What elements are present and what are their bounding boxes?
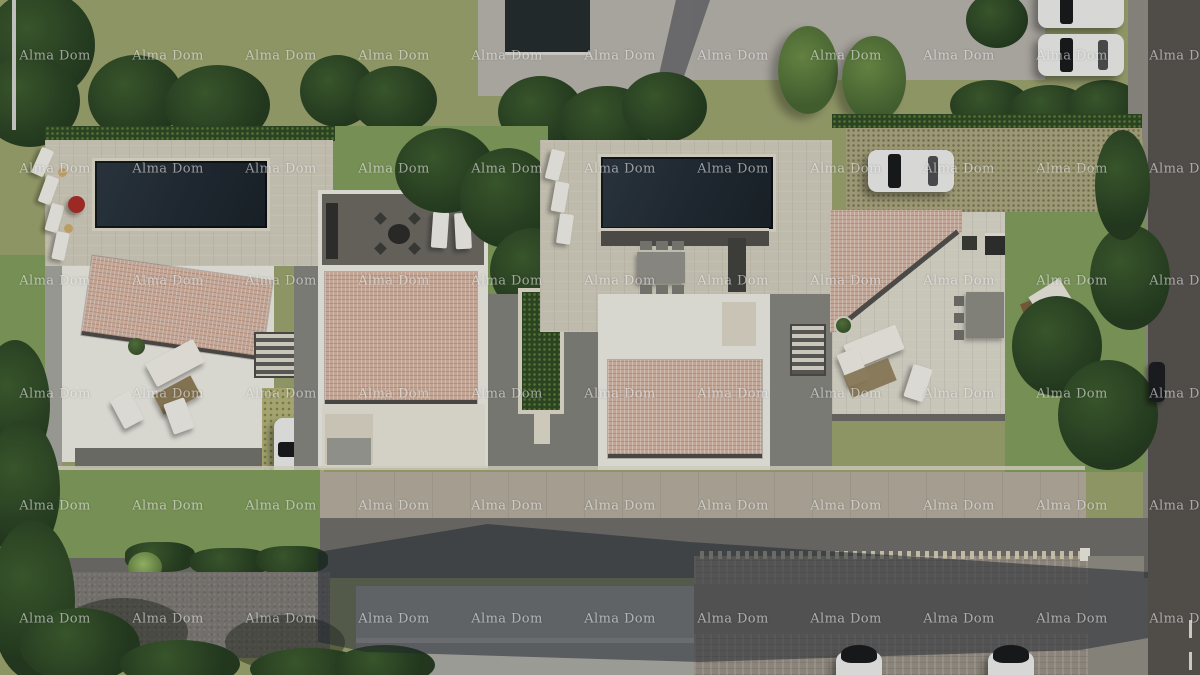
watermark-text: Alma Dom xyxy=(358,49,430,64)
chair xyxy=(640,241,652,250)
road-lane-marking xyxy=(1189,652,1192,670)
villa1-lower-wall xyxy=(75,448,275,468)
villa3-tiled-roof xyxy=(608,360,762,458)
car-windshield xyxy=(993,645,1029,663)
road-right xyxy=(1148,0,1200,675)
chair xyxy=(954,330,964,340)
car-rear-window xyxy=(1098,40,1108,70)
tree xyxy=(352,66,437,134)
aerial-render: Alma DomAlma DomAlma DomAlma DomAlma Dom… xyxy=(0,0,1200,675)
bush xyxy=(778,26,838,114)
red-parasol xyxy=(68,196,85,213)
villa3-stairs xyxy=(792,326,824,374)
villa1-stairs xyxy=(256,334,296,376)
chair xyxy=(672,241,684,250)
chair xyxy=(954,296,964,306)
lamp-post xyxy=(12,0,16,130)
side-paving xyxy=(770,294,832,470)
dark-flat-roof xyxy=(505,0,590,55)
parked-car xyxy=(868,150,954,192)
hedge-row xyxy=(256,546,328,574)
outdoor-kitchen xyxy=(326,203,338,259)
tree xyxy=(1058,360,1158,470)
villa2-entry-paving xyxy=(327,438,371,465)
road-lane-marking xyxy=(1189,620,1192,638)
tree xyxy=(622,72,707,142)
dining-table xyxy=(388,224,410,244)
chair xyxy=(656,241,668,250)
chair xyxy=(954,313,964,323)
watermark-text: Alma Dom xyxy=(245,49,317,64)
grill xyxy=(962,236,977,250)
sidewalk xyxy=(318,472,1086,520)
side-table xyxy=(64,224,73,233)
car-windshield xyxy=(1060,38,1073,72)
sun-lounger xyxy=(431,211,449,248)
dining-table xyxy=(966,292,1004,338)
dark-parked-car xyxy=(1149,362,1165,402)
hedge xyxy=(1095,130,1150,240)
villa3-pool xyxy=(601,157,773,229)
chair xyxy=(656,285,668,294)
walkway xyxy=(294,266,318,470)
dining-table xyxy=(637,252,685,283)
car-windshield xyxy=(1060,0,1073,24)
planter xyxy=(128,338,145,355)
chair xyxy=(640,285,652,294)
hedge-row xyxy=(832,114,1142,128)
kitchen-island xyxy=(728,238,746,292)
bush xyxy=(842,36,906,122)
planter xyxy=(834,316,853,335)
villa2-tiled-roof xyxy=(325,272,477,405)
villa3-upper-room xyxy=(722,302,764,354)
car-windshield xyxy=(888,154,901,188)
car-windshield xyxy=(841,645,877,663)
villa1-pool xyxy=(95,161,267,228)
car-rear-window xyxy=(928,156,938,186)
hedge-row xyxy=(45,126,335,141)
tree xyxy=(1090,225,1170,330)
parked-car xyxy=(1038,34,1124,76)
side-table xyxy=(58,168,67,177)
stepping-path xyxy=(534,410,550,444)
chair xyxy=(672,285,684,294)
parked-car xyxy=(1038,0,1124,28)
